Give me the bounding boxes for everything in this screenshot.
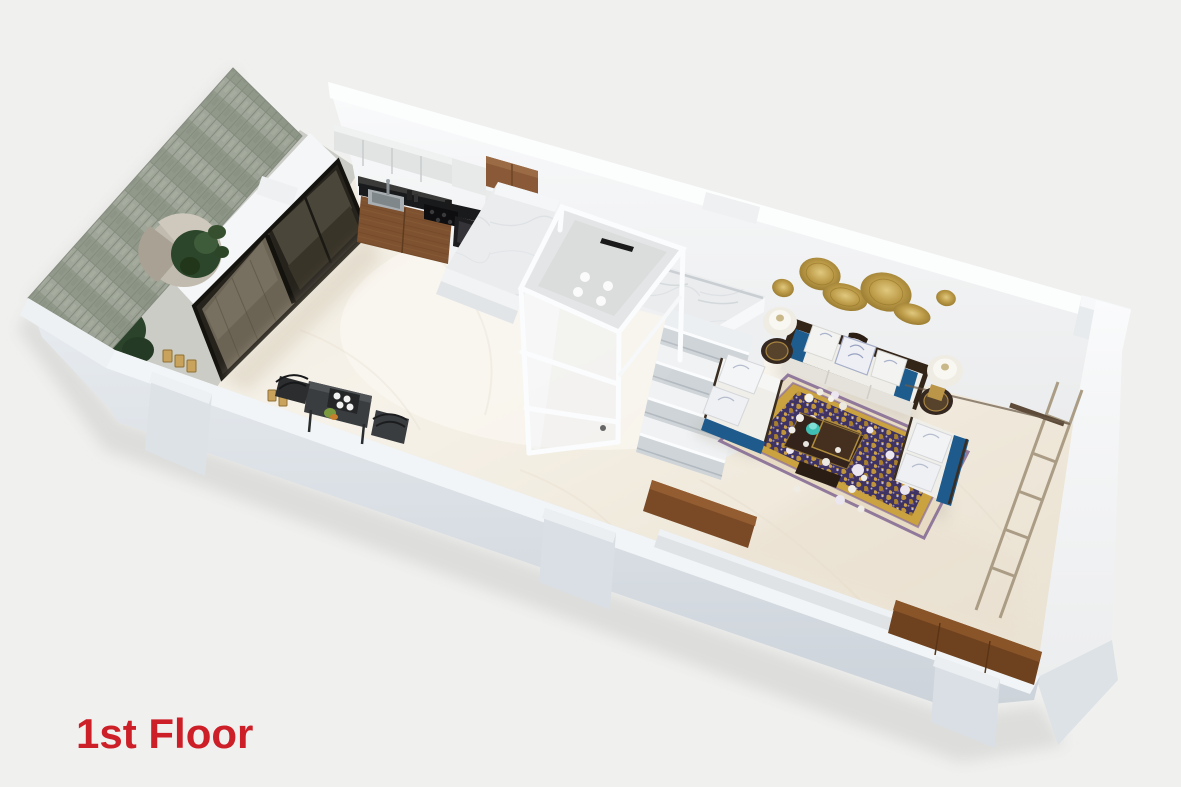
svg-text:1st Floor: 1st Floor [76, 710, 253, 757]
